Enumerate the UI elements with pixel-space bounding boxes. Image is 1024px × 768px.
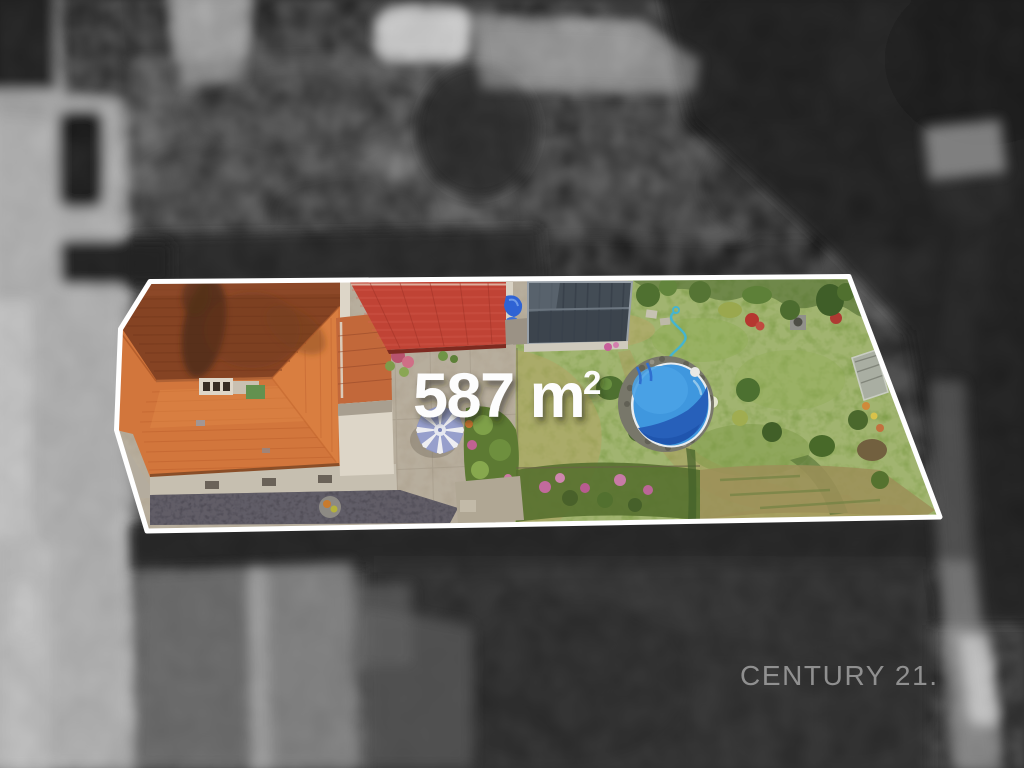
svg-text:CENTURY 21.: CENTURY 21. [740,660,939,691]
svg-text:587 m: 587 m [413,361,584,431]
svg-text:2: 2 [583,364,601,401]
